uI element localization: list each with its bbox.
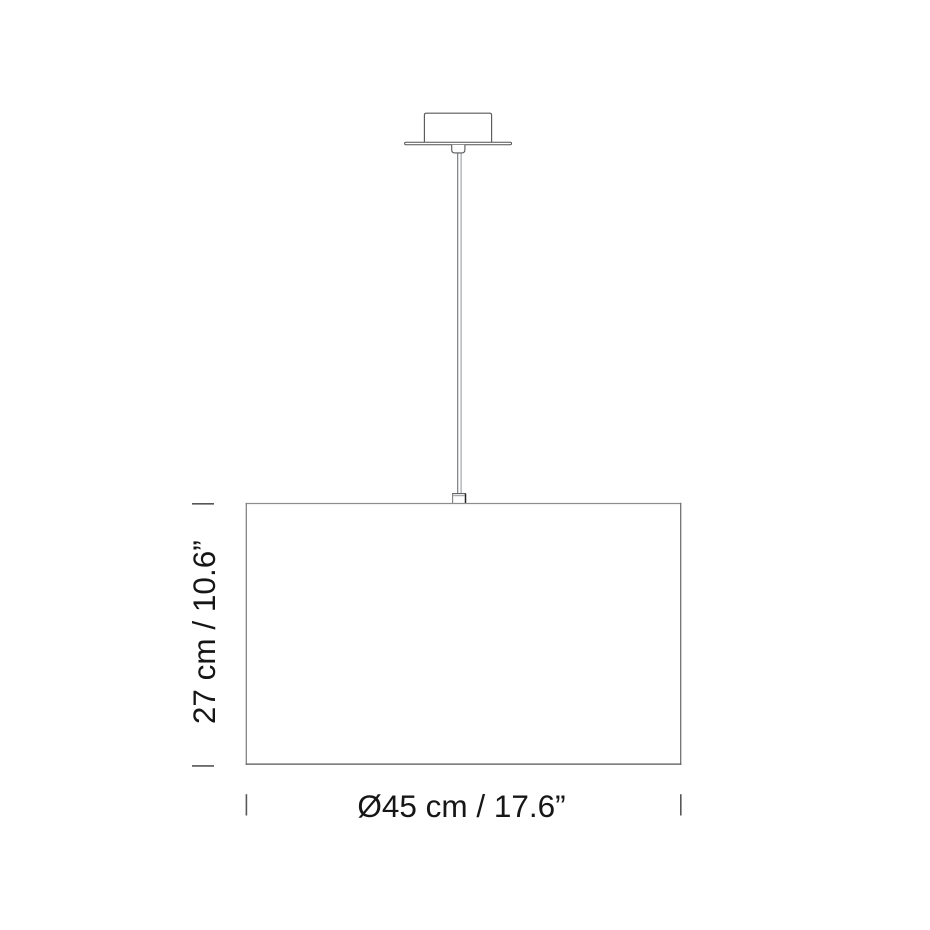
svg-text:27 cm / 10.6”: 27 cm / 10.6” [186,540,222,724]
svg-text:Ø45 cm / 17.6”: Ø45 cm / 17.6” [357,788,565,824]
